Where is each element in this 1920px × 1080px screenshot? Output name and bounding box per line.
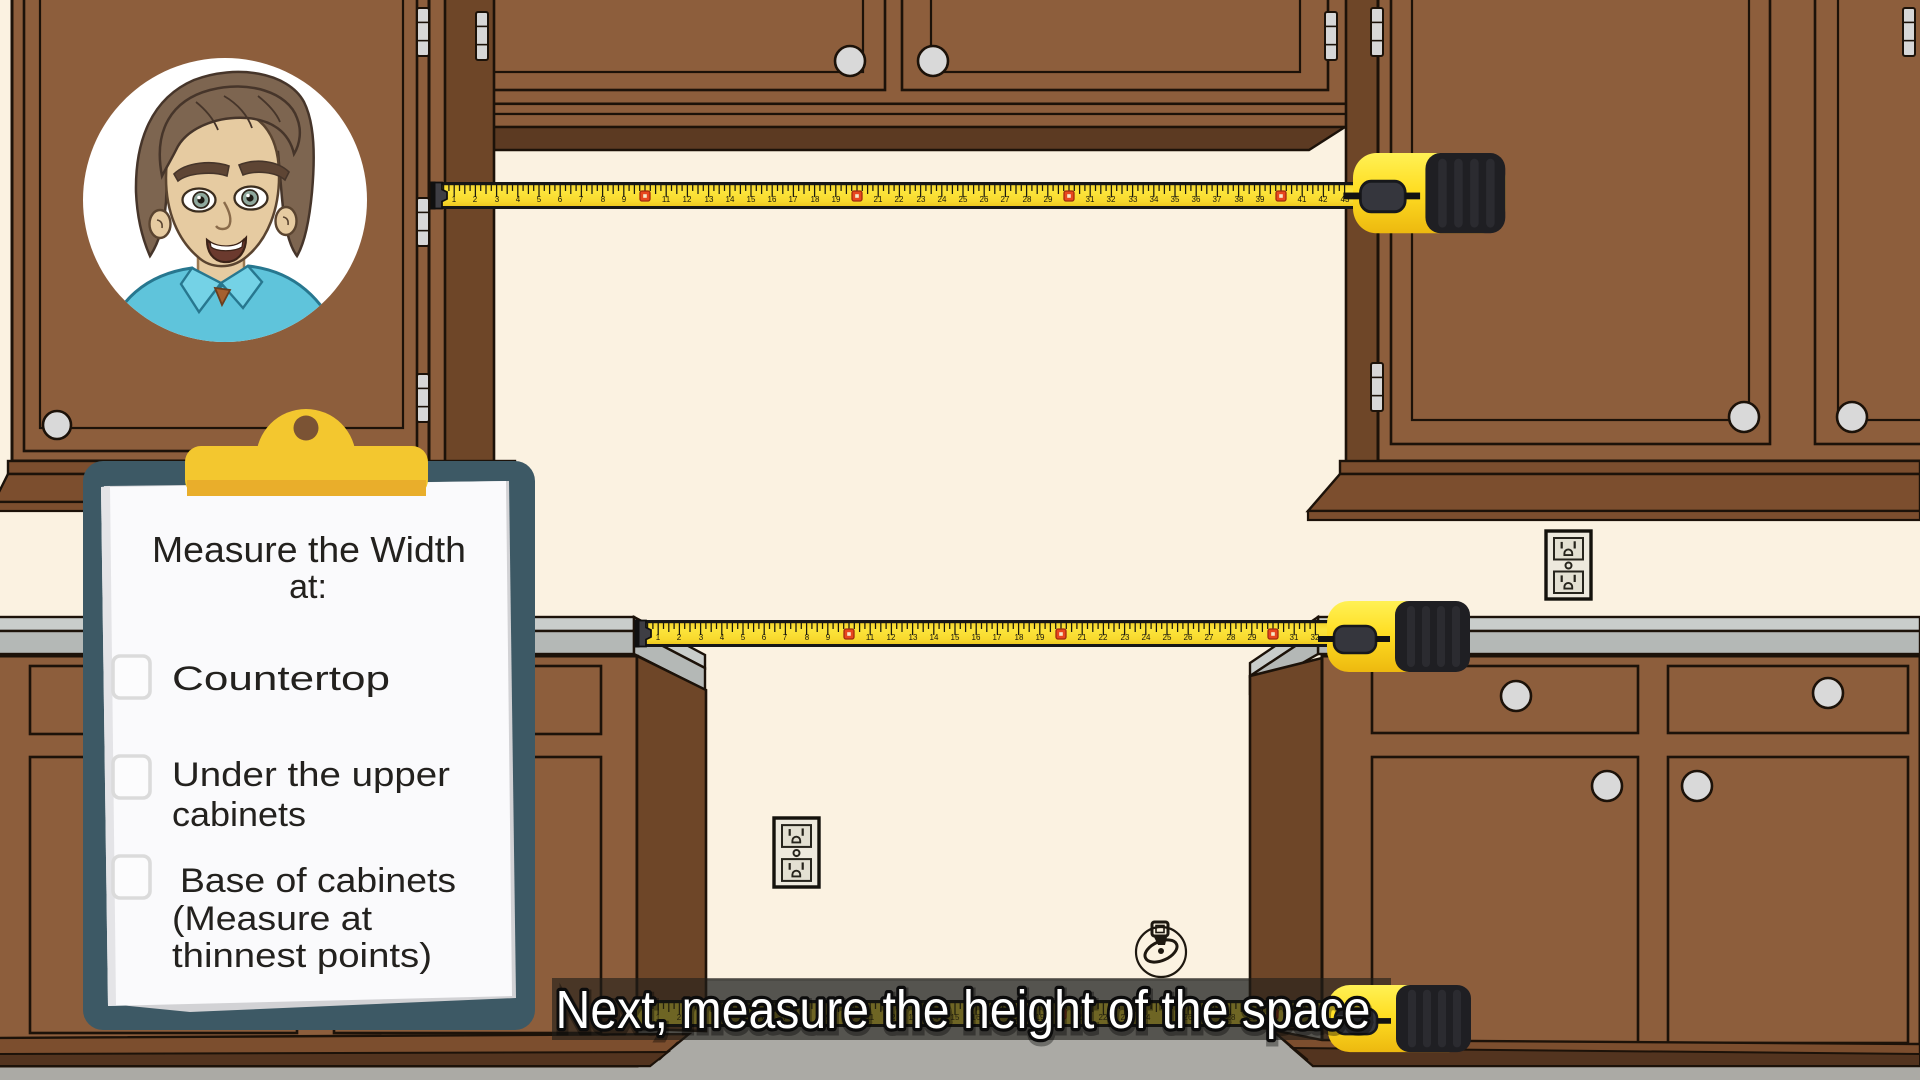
svg-text:Base of cabinets: Base of cabinets <box>180 862 456 900</box>
svg-text:9: 9 <box>622 195 627 204</box>
svg-text:16: 16 <box>768 195 777 204</box>
svg-text:8: 8 <box>601 195 606 204</box>
svg-text:Next, measure the height of th: Next, measure the height of the space <box>556 980 1371 1040</box>
svg-text:3: 3 <box>699 633 704 642</box>
svg-text:5: 5 <box>741 633 746 642</box>
svg-text:35: 35 <box>1171 195 1180 204</box>
svg-text:29: 29 <box>1248 633 1257 642</box>
svg-text:28: 28 <box>1023 195 1032 204</box>
svg-text:7: 7 <box>579 195 584 204</box>
svg-text:1: 1 <box>452 195 457 204</box>
svg-text:cabinets: cabinets <box>172 796 306 834</box>
svg-text:23: 23 <box>917 195 926 204</box>
svg-text:7: 7 <box>783 633 788 642</box>
svg-text:9: 9 <box>826 633 831 642</box>
svg-text:6: 6 <box>762 633 767 642</box>
svg-text:17: 17 <box>789 195 798 204</box>
svg-text:2: 2 <box>473 195 478 204</box>
svg-text:18: 18 <box>1015 633 1024 642</box>
svg-text:11: 11 <box>662 195 671 204</box>
svg-text:16: 16 <box>972 633 981 642</box>
svg-text:42: 42 <box>1319 195 1328 204</box>
svg-text:19: 19 <box>1036 633 1045 642</box>
svg-text:4: 4 <box>516 195 521 204</box>
svg-text:32: 32 <box>1107 195 1116 204</box>
svg-text:22: 22 <box>895 195 904 204</box>
svg-text:2: 2 <box>677 633 682 642</box>
svg-text:at:: at: <box>289 568 327 606</box>
svg-text:37: 37 <box>1213 195 1222 204</box>
svg-text:23: 23 <box>1121 633 1130 642</box>
svg-text:38: 38 <box>1235 195 1244 204</box>
svg-text:14: 14 <box>930 633 939 642</box>
svg-text:3: 3 <box>495 195 500 204</box>
svg-text:31: 31 <box>1086 195 1095 204</box>
svg-text:15: 15 <box>951 633 960 642</box>
svg-text:thinnest points): thinnest points) <box>172 937 432 975</box>
svg-text:4: 4 <box>720 633 725 642</box>
svg-text:14: 14 <box>726 195 735 204</box>
svg-text:31: 31 <box>1290 633 1299 642</box>
svg-text:15: 15 <box>747 195 756 204</box>
svg-text:26: 26 <box>980 195 989 204</box>
svg-text:28: 28 <box>1227 633 1236 642</box>
svg-text:25: 25 <box>959 195 968 204</box>
svg-text:12: 12 <box>887 633 896 642</box>
svg-text:Countertop: Countertop <box>172 660 390 698</box>
svg-text:5: 5 <box>537 195 542 204</box>
svg-text:27: 27 <box>1205 633 1214 642</box>
svg-text:Under the upper: Under the upper <box>172 756 450 794</box>
svg-text:24: 24 <box>938 195 947 204</box>
svg-text:13: 13 <box>705 195 714 204</box>
svg-text:(Measure at: (Measure at <box>172 900 373 938</box>
svg-text:24: 24 <box>1142 633 1151 642</box>
svg-text:Measure the Width: Measure the Width <box>152 529 466 570</box>
svg-text:13: 13 <box>909 633 918 642</box>
svg-text:25: 25 <box>1163 633 1172 642</box>
svg-text:21: 21 <box>874 195 883 204</box>
svg-text:39: 39 <box>1256 195 1265 204</box>
svg-text:6: 6 <box>558 195 563 204</box>
svg-text:18: 18 <box>811 195 820 204</box>
svg-text:22: 22 <box>1099 633 1108 642</box>
svg-text:33: 33 <box>1129 195 1138 204</box>
svg-text:41: 41 <box>1298 195 1307 204</box>
svg-text:27: 27 <box>1001 195 1010 204</box>
svg-text:36: 36 <box>1192 195 1201 204</box>
svg-text:11: 11 <box>866 633 875 642</box>
svg-text:17: 17 <box>993 633 1002 642</box>
svg-text:29: 29 <box>1044 195 1053 204</box>
svg-text:34: 34 <box>1150 195 1159 204</box>
svg-text:19: 19 <box>832 195 841 204</box>
svg-text:12: 12 <box>683 195 692 204</box>
svg-text:26: 26 <box>1184 633 1193 642</box>
svg-text:8: 8 <box>805 633 810 642</box>
svg-text:1: 1 <box>656 633 661 642</box>
svg-text:21: 21 <box>1078 633 1087 642</box>
